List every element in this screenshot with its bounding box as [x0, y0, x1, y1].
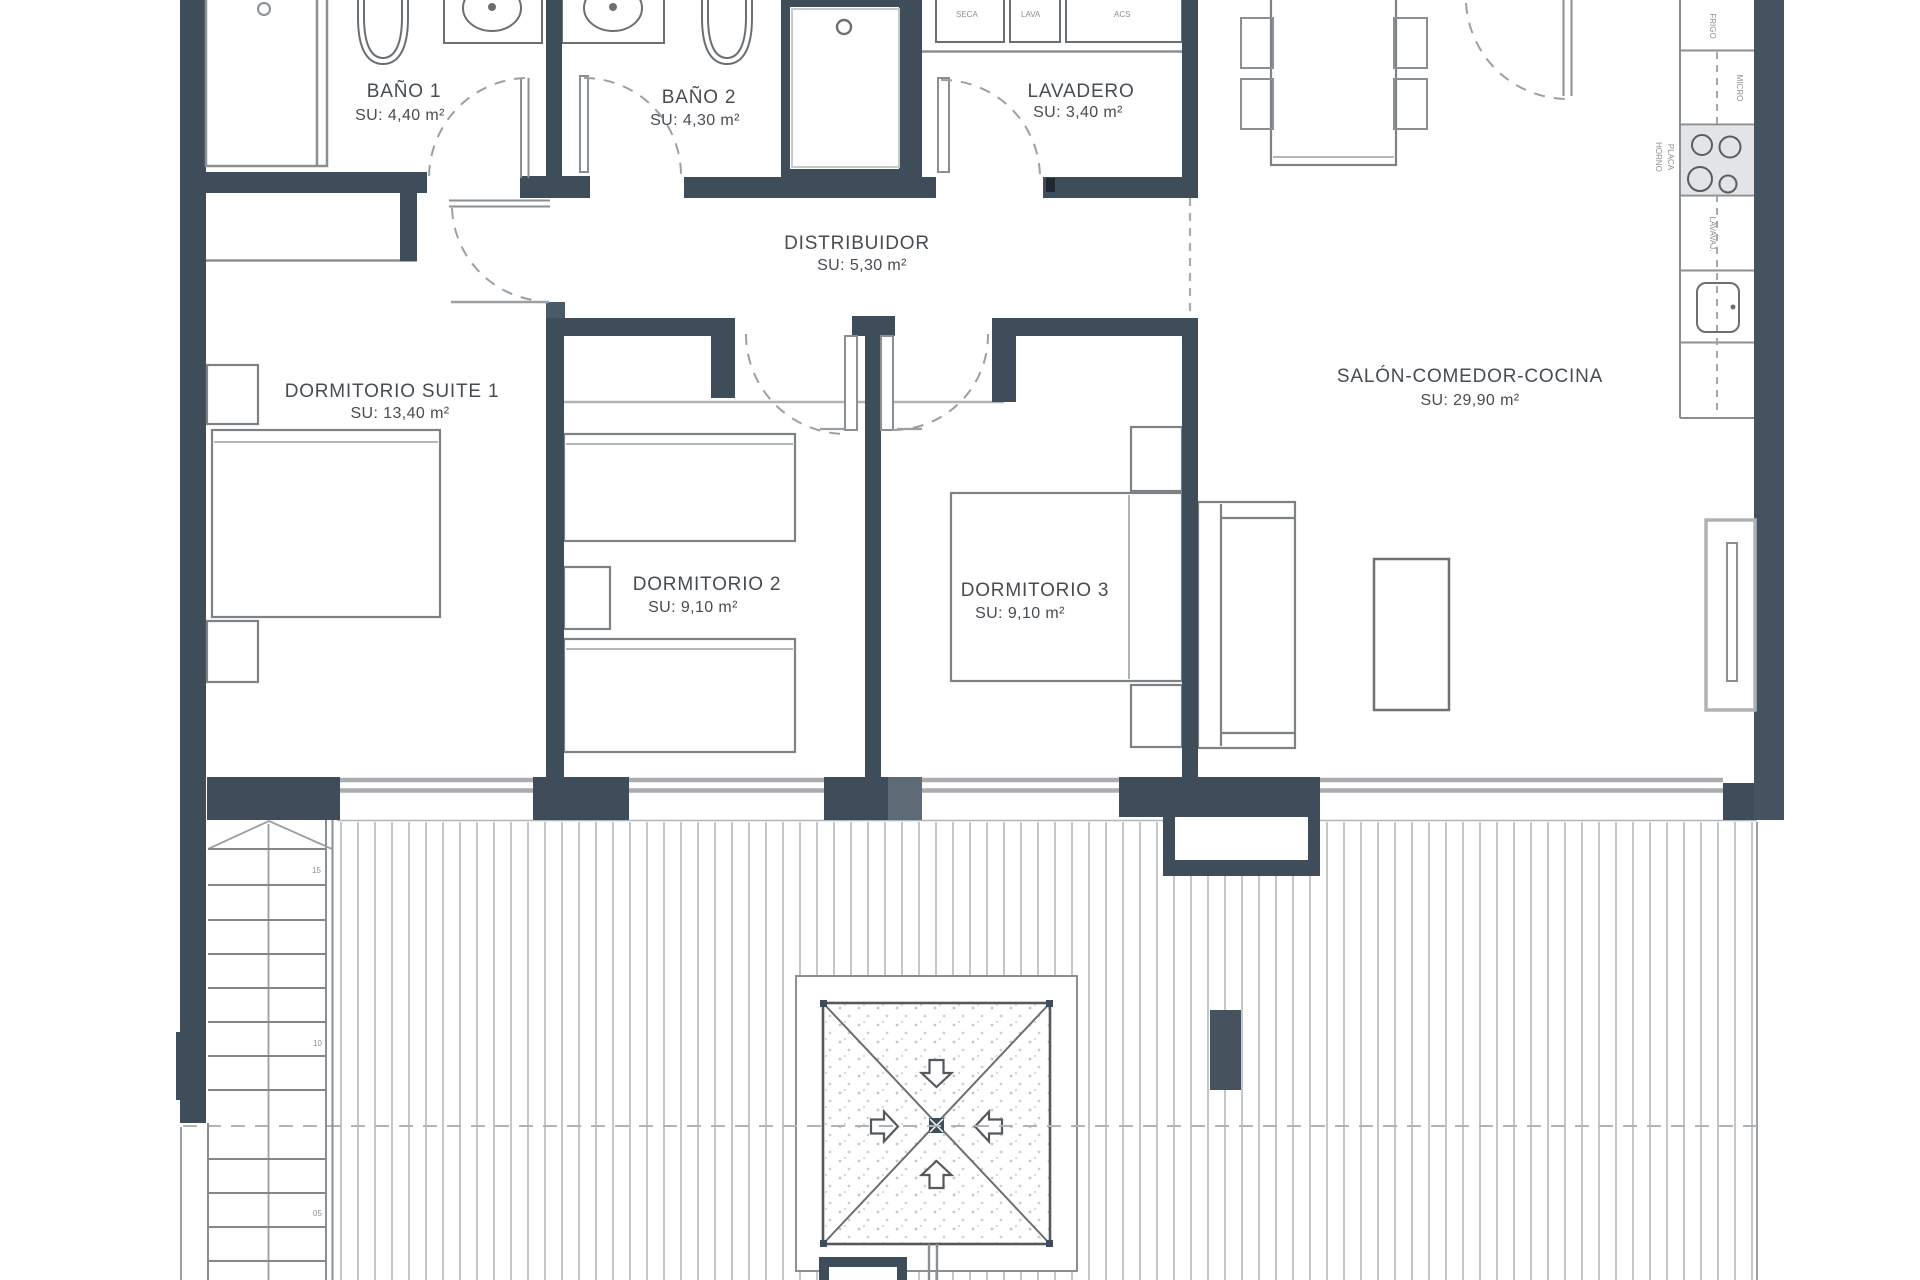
svg-text:MICRO: MICRO — [1735, 75, 1744, 102]
svg-text:SU: 29,90 m²: SU: 29,90 m² — [1420, 392, 1519, 409]
svg-text:DORMITORIO SUITE 1: DORMITORIO SUITE 1 — [285, 381, 500, 402]
svg-text:PLACA: PLACA — [1666, 144, 1675, 171]
svg-text:LAVADERO: LAVADERO — [1027, 81, 1134, 102]
svg-text:DISTRIBUIDOR: DISTRIBUIDOR — [784, 233, 930, 254]
svg-text:SU: 3,40 m²: SU: 3,40 m² — [1033, 104, 1123, 121]
svg-text:ACS: ACS — [1114, 10, 1130, 19]
svg-text:SU: 9,10 m²: SU: 9,10 m² — [975, 605, 1065, 622]
svg-text:05: 05 — [313, 1209, 322, 1218]
svg-text:BAÑO 2: BAÑO 2 — [662, 86, 737, 108]
svg-text:SU: 4,40 m²: SU: 4,40 m² — [355, 107, 445, 124]
svg-text:SALÓN-COMEDOR-COCINA: SALÓN-COMEDOR-COCINA — [1337, 365, 1603, 387]
svg-text:DORMITORIO 3: DORMITORIO 3 — [961, 580, 1110, 601]
svg-text:HORNO: HORNO — [1654, 142, 1663, 172]
svg-text:SU: 13,40 m²: SU: 13,40 m² — [350, 405, 449, 422]
svg-text:SU: 5,30 m²: SU: 5,30 m² — [817, 257, 907, 274]
svg-text:LAVAVAJ.: LAVAVAJ. — [1708, 217, 1717, 252]
svg-text:SU: 9,10 m²: SU: 9,10 m² — [648, 599, 738, 616]
svg-text:FRIGO: FRIGO — [1708, 13, 1717, 38]
svg-text:15: 15 — [312, 866, 321, 875]
svg-text:BAÑO 1: BAÑO 1 — [367, 80, 442, 102]
svg-text:10: 10 — [313, 1039, 322, 1048]
svg-text:DORMITORIO 2: DORMITORIO 2 — [633, 574, 782, 595]
svg-text:SU: 4,30 m²: SU: 4,30 m² — [650, 112, 740, 129]
svg-text:LAVA: LAVA — [1021, 10, 1041, 19]
svg-text:SECA: SECA — [956, 10, 978, 19]
